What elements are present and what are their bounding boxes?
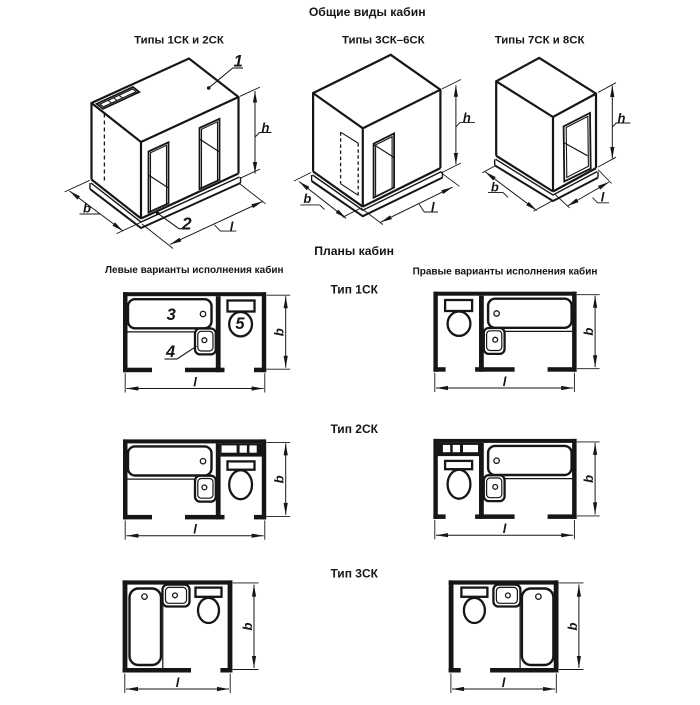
svg-text:Тип 3СК: Тип 3СК bbox=[330, 567, 378, 581]
svg-text:b: b bbox=[240, 622, 255, 630]
svg-text:Общие виды кабин: Общие виды кабин bbox=[309, 5, 426, 19]
svg-text:b: b bbox=[303, 191, 311, 206]
svg-text:h: h bbox=[618, 110, 626, 125]
svg-text:l: l bbox=[431, 200, 435, 215]
svg-text:2: 2 bbox=[181, 214, 192, 234]
svg-text:l: l bbox=[601, 189, 605, 204]
svg-text:h: h bbox=[262, 120, 270, 135]
svg-text:4: 4 bbox=[165, 343, 175, 361]
svg-text:Типы 3СК–6СК: Типы 3СК–6СК bbox=[342, 34, 425, 46]
svg-text:l: l bbox=[193, 522, 197, 537]
svg-text:b: b bbox=[491, 179, 499, 194]
svg-text:Типы 7СК и 8СК: Типы 7СК и 8СК bbox=[495, 34, 585, 46]
svg-text:b: b bbox=[581, 475, 596, 483]
svg-text:Правые варианты исполнения каб: Правые варианты исполнения кабин bbox=[413, 265, 598, 277]
svg-text:l: l bbox=[503, 374, 507, 389]
svg-text:3: 3 bbox=[167, 306, 176, 324]
svg-text:Левые варианты исполнения каби: Левые варианты исполнения кабин bbox=[105, 264, 284, 276]
svg-text:5: 5 bbox=[235, 315, 245, 333]
svg-text:Тип 2СК: Тип 2СК bbox=[330, 422, 378, 436]
svg-text:b: b bbox=[272, 328, 287, 336]
svg-text:l: l bbox=[230, 219, 234, 234]
svg-text:h: h bbox=[463, 110, 471, 125]
svg-text:Тип 1СК: Тип 1СК bbox=[330, 283, 378, 297]
svg-text:b: b bbox=[581, 328, 596, 336]
svg-text:Планы кабин: Планы кабин bbox=[314, 244, 394, 258]
svg-text:b: b bbox=[272, 475, 287, 483]
svg-text:l: l bbox=[502, 675, 506, 690]
svg-text:b: b bbox=[83, 201, 91, 216]
svg-text:l: l bbox=[176, 675, 180, 690]
svg-text:l: l bbox=[503, 521, 507, 536]
svg-text:Типы 1СК и 2СК: Типы 1СК и 2СК bbox=[134, 34, 224, 46]
svg-text:l: l bbox=[193, 374, 197, 389]
svg-text:1: 1 bbox=[234, 53, 243, 71]
svg-text:b: b bbox=[565, 622, 580, 630]
